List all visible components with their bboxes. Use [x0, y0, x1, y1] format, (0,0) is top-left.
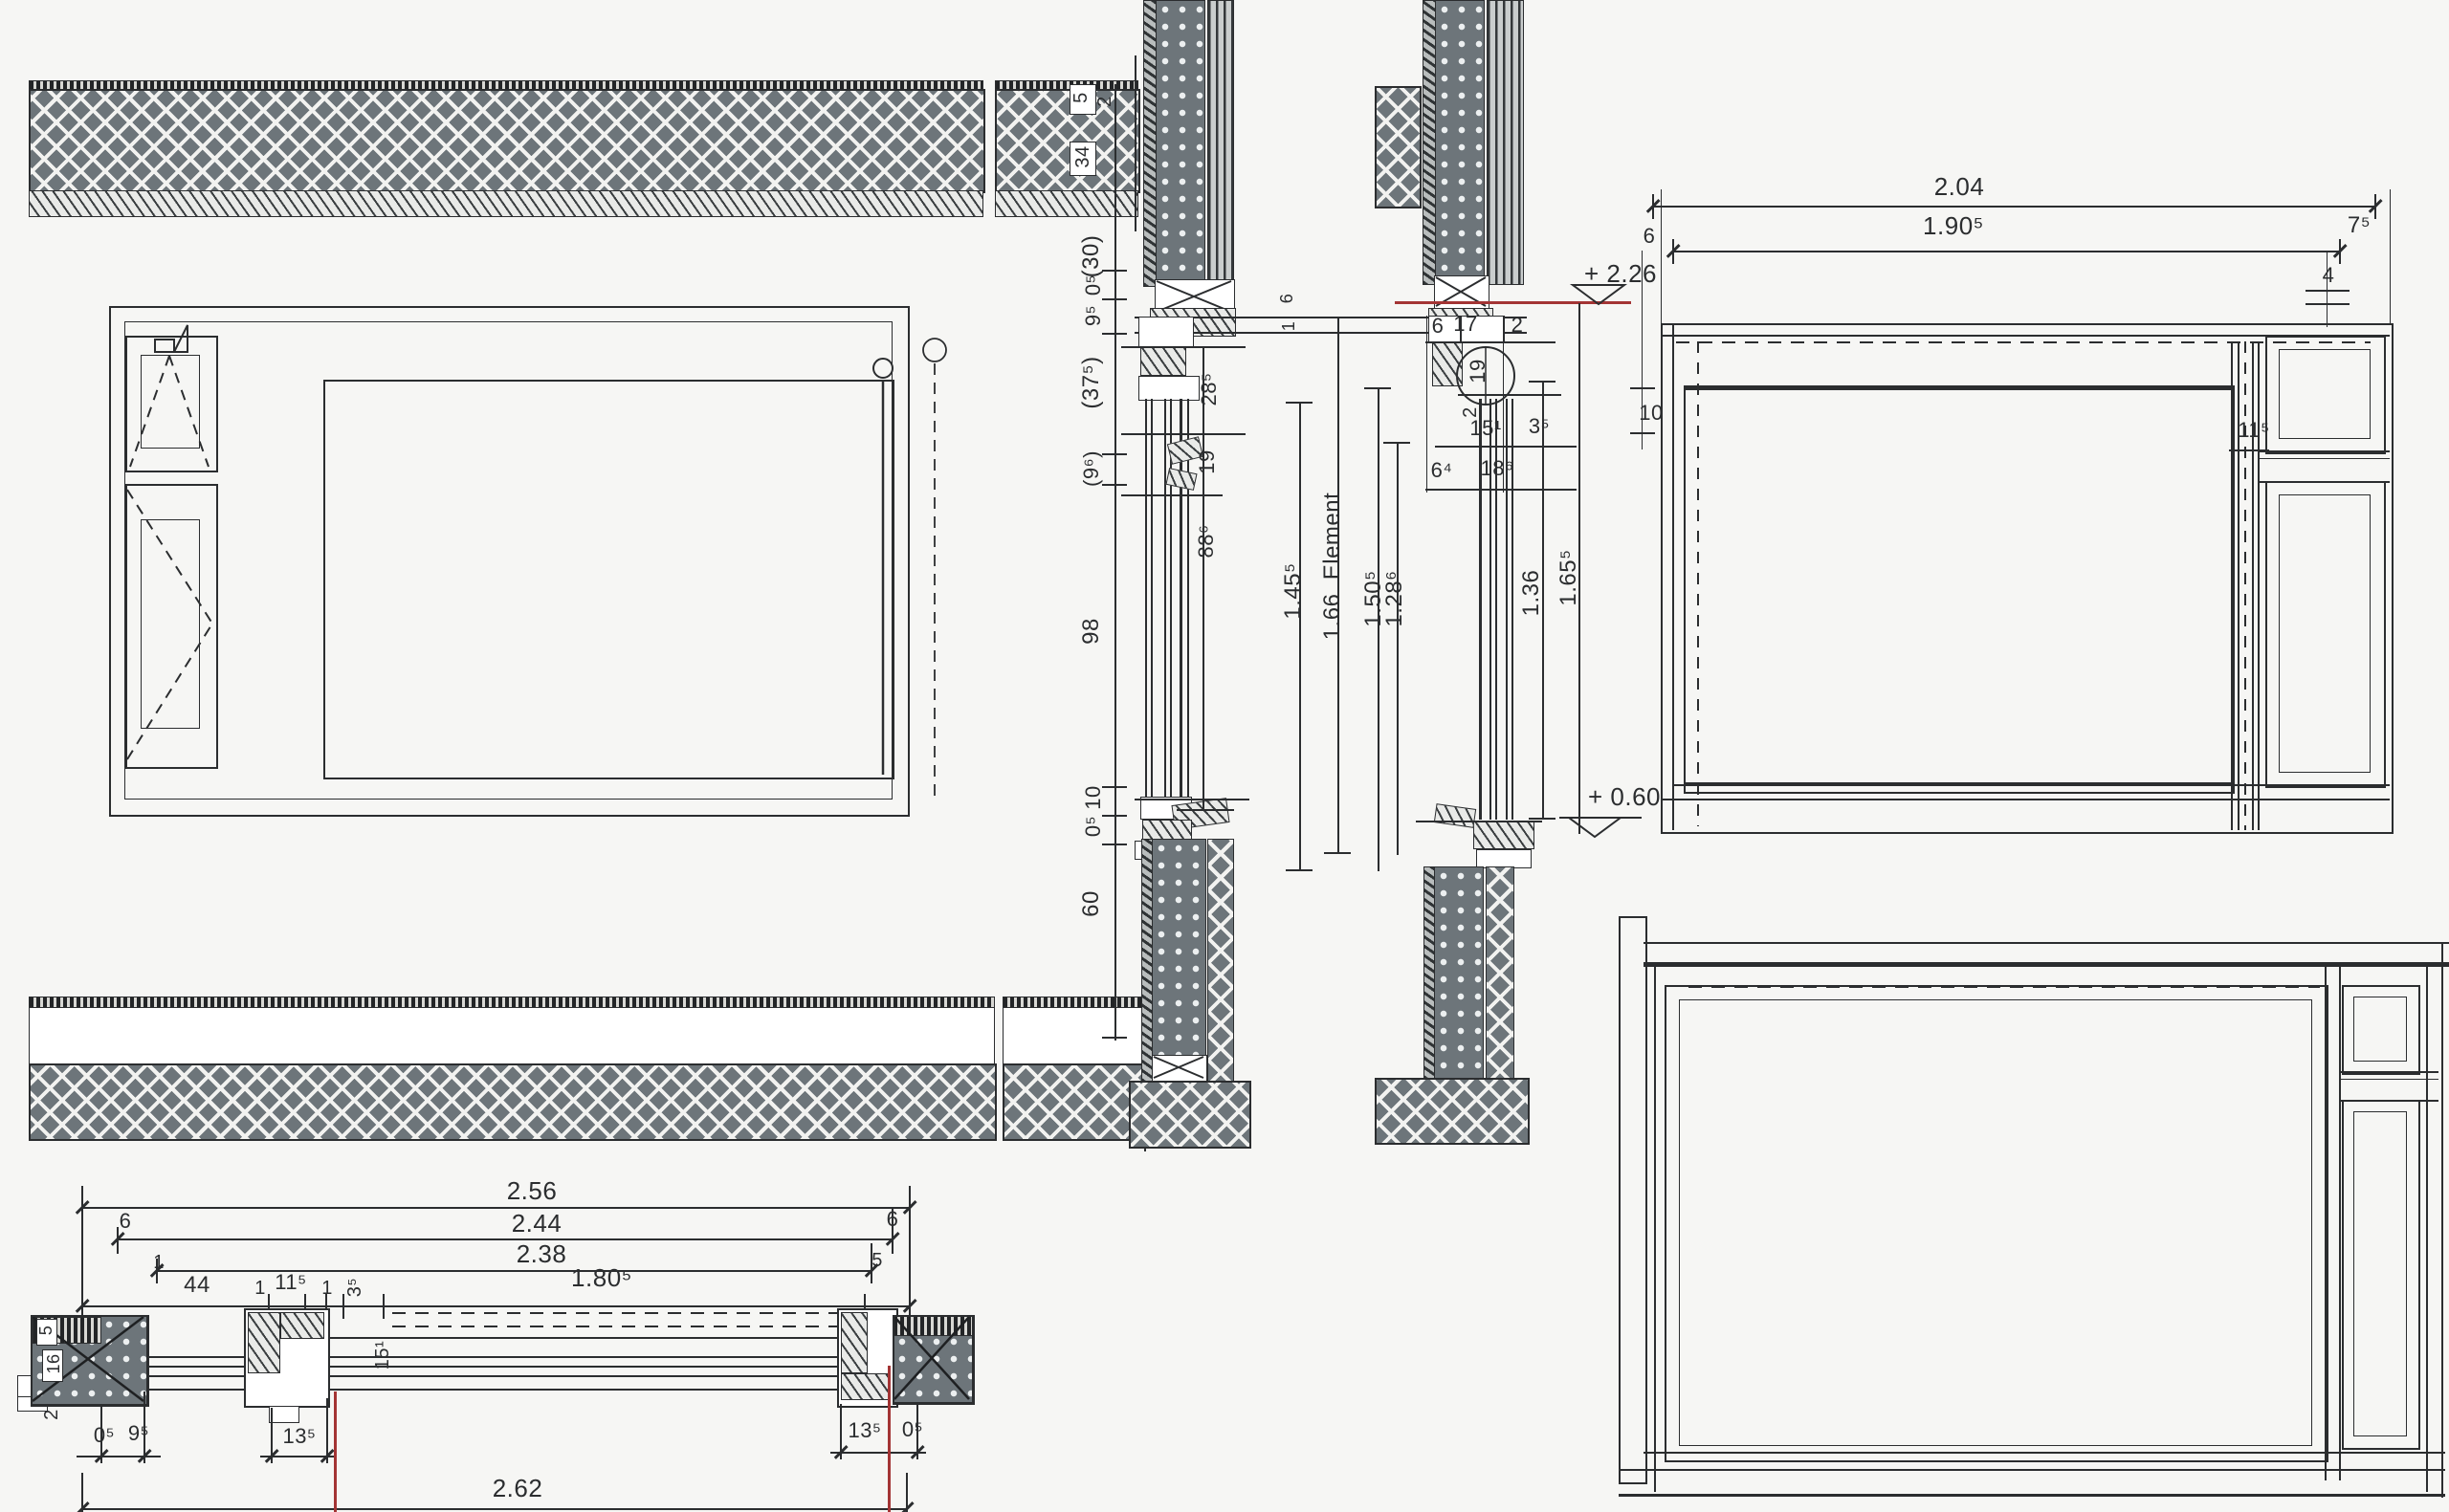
drawing-line [1644, 942, 2449, 944]
dim-label-horizontal_section_bottom: 0⁵ [902, 1419, 923, 1440]
dim-label-horizontal_section_bottom: 1 [321, 1279, 333, 1298]
drawing-line [1102, 333, 1127, 335]
drawing-line [57, 1375, 942, 1377]
architectural-window-detail-drawing: 5234(30)0⁵9⁵(37⁵)(9⁶)98100⁵606128⁵1988⁶1… [0, 0, 2449, 1512]
drawing-line [873, 359, 893, 378]
drawing-line [156, 1270, 871, 1272]
drawing-line [392, 1312, 849, 1314]
dim-label-horizontal_section_bottom: 1 [254, 1279, 266, 1298]
drawing-line [1102, 1037, 1127, 1039]
dim-label-vertical_section_left_column: (30) [1080, 235, 1103, 278]
dim-label-vertical_section_left_column: 9⁵ [1083, 305, 1104, 326]
dim-label-elevation_top_right: 1.90⁵ [1923, 213, 1984, 238]
dim-label-element_heights: 1.65⁵ [1557, 549, 1580, 605]
dim-label-horizontal_section_bottom: 15¹ [373, 1341, 392, 1370]
dim-label-vertical_section_left_column: 98 [1080, 618, 1103, 645]
dim-label-vertical_section_inner: 1 [1280, 321, 1297, 332]
dim-label-vertical_section_left_column: 10 [1083, 785, 1104, 809]
dim-label-element_heights: 1.28⁶ [1383, 570, 1406, 626]
drawing-line [1102, 484, 1127, 486]
drawing-line [1324, 852, 1351, 854]
drawing-line [81, 1305, 909, 1307]
drawing-line [1202, 346, 1204, 809]
drawing-line [2325, 964, 2327, 1480]
drawing-line [91, 1366, 907, 1368]
drawing-line [2426, 964, 2428, 1492]
drawing-line [1573, 285, 1624, 304]
drawing-line [1164, 399, 1166, 797]
dim-label-elevation_top_right: 6 [1644, 226, 1656, 247]
dim-label-level_marks: + 0.60 [1588, 784, 1661, 809]
drawing-line [155, 340, 174, 352]
drawing-line [2258, 458, 2390, 459]
drawing-line [1416, 821, 1542, 822]
drawing-line [1529, 381, 1555, 383]
drawing-line [1102, 453, 1127, 455]
level-marker-060 [1567, 816, 1622, 839]
dim-label-vertical_section_left_column: (9⁶) [1081, 450, 1102, 487]
dim-label-vertical_section_left_column: (37⁵) [1080, 356, 1103, 408]
dim-label-horizontal_section_bottom: 3⁵ [345, 1278, 364, 1297]
drawing-line [127, 490, 212, 759]
drawing-line [1619, 1469, 2445, 1471]
drawing-line [1434, 803, 1476, 828]
drawing-line [1142, 820, 1192, 841]
drawing-line [57, 1389, 942, 1391]
drawing-line [1152, 839, 1206, 1083]
dim-label-horizontal_section_bottom: 11⁵ [275, 1272, 306, 1293]
insulation-block-floating [1375, 86, 1422, 208]
drawing-line [1378, 387, 1379, 871]
drawing-line [77, 1456, 161, 1457]
drawing-line [2390, 189, 2391, 325]
drawing-line [2306, 290, 2350, 292]
dim-label-horizontal_section_bottom: 6 [120, 1211, 132, 1232]
drawing-line [1145, 399, 1147, 797]
dim-label-frame_detail_dims: 17 [1453, 314, 1477, 335]
drawing-line [29, 1007, 995, 1065]
drawing-line [1129, 1081, 1251, 1149]
dim-label-horizontal_section_bottom: 13⁵ [282, 1426, 316, 1447]
drawing-line [325, 1337, 849, 1339]
drawing-line [1529, 818, 1555, 820]
drawing-line [130, 356, 209, 467]
drawing-line [1152, 1055, 1205, 1080]
drawing-line [1135, 799, 1249, 800]
drawing-line [1121, 433, 1246, 435]
dim-label-frame_detail_dims: 2 [1511, 315, 1524, 336]
drawing-line [1434, 866, 1484, 1080]
dim-label-horizontal_section_bottom: 2.56 [507, 1178, 558, 1203]
drawing-line [1688, 986, 2320, 988]
dim-label-horizontal_section_bottom: 44 [184, 1274, 210, 1297]
dim-label-horizontal_section_bottom: 16 [45, 1353, 62, 1373]
reference-line-red-left [334, 1391, 337, 1512]
drawing-line [2339, 1079, 2438, 1080]
drawing-line [1644, 962, 2449, 967]
dim-label-frame_detail_dims: 19 [1467, 359, 1489, 383]
drawing-line [841, 1312, 868, 1373]
drawing-line [841, 1373, 891, 1400]
dim-label-horizontal_section_bottom: 1 [153, 1253, 165, 1272]
dim-label-vertical_section_left_column: 0⁵ [1083, 274, 1104, 296]
drawing-line [1630, 432, 1655, 434]
drawing-line [1672, 784, 2390, 786]
drawing-line [1619, 1494, 2445, 1497]
drawing-line [174, 325, 188, 352]
drawing-line [2306, 303, 2350, 305]
drawing-line [1154, 1057, 1203, 1078]
main-glazing [1684, 385, 2235, 794]
drawing-line [1138, 376, 1200, 401]
drawing-line [1569, 818, 1621, 837]
drawing-line [29, 89, 985, 193]
dim-label-horizontal_section_bottom: 9⁵ [128, 1423, 149, 1444]
dim-label-horizontal_section_bottom: 5 [871, 1251, 883, 1270]
drawing-line [2353, 1111, 2407, 1436]
dim-label-vertical_section_inner: 6 [1278, 294, 1295, 304]
drawing-line [1644, 1452, 2445, 1454]
drawing-line [1121, 346, 1246, 348]
drawing-line [392, 1326, 849, 1327]
drawing-line [1102, 298, 1127, 300]
dim-label-horizontal_section_bottom: 0⁵ [94, 1425, 115, 1446]
dim-label-vertical_section_inner: 19 [1197, 449, 1218, 473]
drawing-line [280, 1312, 324, 1339]
drawing-line [1661, 799, 2390, 800]
drawing-line [2252, 341, 2254, 830]
drawing-line [1156, 0, 1205, 287]
dim-label-horizontal_section_bottom: 6 [887, 1209, 899, 1230]
elevation-symbols [96, 287, 957, 842]
dim-label-horizontal_section_bottom: 2.38 [517, 1241, 567, 1266]
dim-label-elevation_top_right: 4 [2323, 265, 2335, 286]
drawing-line [2244, 341, 2246, 830]
drawing-line [1177, 809, 1234, 811]
drawing-line [1114, 84, 1116, 1041]
dim-label-frame_detail_dims: 6 [1432, 316, 1445, 337]
drawing-line [1487, 0, 1524, 285]
dim-label-top_strip: 2 [1095, 96, 1114, 107]
drawing-line [1003, 1063, 1146, 1141]
dim-label-frame_detail_dims: 6⁴ [1431, 460, 1453, 481]
drawing-line [2279, 494, 2371, 773]
drawing-line [1476, 849, 1532, 868]
drawing-line [1458, 394, 1561, 396]
drawing-line [1672, 251, 2339, 252]
drawing-line [81, 1207, 909, 1209]
drawing-line [2339, 964, 2341, 1480]
drawing-line [1364, 387, 1391, 389]
dim-label-elevation_top_right: 2.04 [1934, 174, 1985, 199]
drawing-line [2229, 449, 2269, 451]
drawing-line [1102, 815, 1127, 817]
dim-label-horizontal_section_bottom: 2.44 [512, 1211, 563, 1236]
drawing-line [1299, 402, 1301, 869]
dim-label-frame_detail_dims: 18⁶ [1480, 458, 1513, 479]
drawing-line [1423, 0, 1436, 285]
drawing-line [1286, 402, 1313, 404]
dim-label-elevation_top_right: 7⁵ [2348, 214, 2371, 237]
drawing-line [1207, 0, 1234, 287]
drawing-line [1121, 494, 1223, 496]
drawing-line [1102, 270, 1127, 272]
drawing-line [383, 1294, 385, 1319]
dim-label-elevation_top_right: 10 [1639, 403, 1663, 424]
drawing-line [1102, 844, 1127, 845]
drawing-line [1143, 0, 1157, 287]
drawing-line [1135, 55, 1136, 231]
drawing-line [1425, 341, 1555, 343]
dim-label-elevation_top_right: 11⁵ [2238, 420, 2269, 441]
drawing-line [269, 1406, 299, 1423]
drawing-line [1102, 786, 1127, 788]
drawing-line [1140, 347, 1186, 376]
drawing-line [29, 1063, 997, 1141]
dim-label-frame_detail_dims: 3⁵ [1529, 416, 1550, 437]
drawing-line [2353, 997, 2407, 1062]
dim-label-horizontal_section_bottom: 2 [42, 1409, 61, 1420]
dim-label-vertical_section_inner: 28⁵ [1199, 372, 1220, 405]
dim-label-element_heights: 1.45⁵ [1282, 562, 1305, 619]
drawing-line [1286, 869, 1313, 871]
dim-label-element_heights: 1.36 [1520, 570, 1543, 617]
drawing-line [29, 190, 983, 217]
drawing-line [342, 1294, 344, 1319]
dim-label-horizontal_section_bottom: 2.62 [493, 1476, 543, 1501]
drawing-line [2279, 349, 2371, 439]
drawing-line [1672, 323, 1674, 830]
drawing-line [2339, 1071, 2438, 1073]
drawing-line [2327, 251, 2328, 327]
drawing-line [1397, 442, 1399, 855]
drawing-line [1151, 399, 1153, 797]
reference-line-red-right [888, 1366, 891, 1512]
drawing-line [248, 1312, 280, 1373]
drawing-line [995, 190, 1138, 217]
dim-label-horizontal_section_bottom: 5 [37, 1326, 55, 1336]
drawing-line [1654, 964, 1656, 1492]
drawing-line [91, 1356, 907, 1358]
drawing-line [995, 89, 1140, 193]
drawing-line [893, 1315, 975, 1405]
drawing-line [1697, 341, 1699, 826]
dim-label-top_strip: 34 [1073, 145, 1092, 167]
drawing-line [923, 339, 946, 362]
drawing-line [1435, 446, 1577, 448]
drawing-line [1426, 316, 1427, 493]
drawing-line [1652, 206, 2374, 208]
dim-label-top_strip: 5 [1071, 92, 1091, 103]
dim-label-level_marks: + 2.26 [1584, 261, 1657, 286]
dim-label-frame_detail_dims: 15¹ [1469, 418, 1501, 439]
drawing-line [81, 1508, 906, 1510]
drawing-line [1207, 839, 1234, 1083]
drawing-line [1473, 821, 1534, 849]
dim-label-element_heights: 1.66 Element [1321, 493, 1344, 641]
drawing-line [1425, 489, 1577, 491]
drawing-line [2258, 341, 2260, 830]
drawing-line [2441, 942, 2443, 1498]
drawing-line [1630, 387, 1655, 389]
dim-label-horizontal_section_bottom: 1.80⁵ [571, 1265, 632, 1290]
drawing-line [2238, 341, 2239, 830]
drawing-line [1383, 442, 1410, 444]
drawing-line [830, 1452, 926, 1454]
drawing-line [2231, 341, 2233, 830]
drawing-line [1435, 0, 1485, 285]
dim-label-vertical_section_left_column: 0⁵ [1083, 816, 1104, 837]
drawing-line [1375, 1078, 1530, 1145]
drawing-line [2258, 450, 2390, 452]
drawing-line [117, 1238, 892, 1240]
drawing-line [1661, 189, 1662, 325]
drawing-line [1619, 916, 1647, 1484]
drawing-line [1559, 817, 1642, 819]
drawing-line [1486, 866, 1514, 1080]
dim-label-vertical_section_inner: 88⁶ [1196, 524, 1217, 558]
dim-label-vertical_section_left_column: 60 [1080, 890, 1103, 917]
dim-label-horizontal_section_bottom: 13⁵ [848, 1420, 881, 1441]
drawing-line [1138, 317, 1194, 347]
drawing-line [1679, 999, 2312, 1446]
